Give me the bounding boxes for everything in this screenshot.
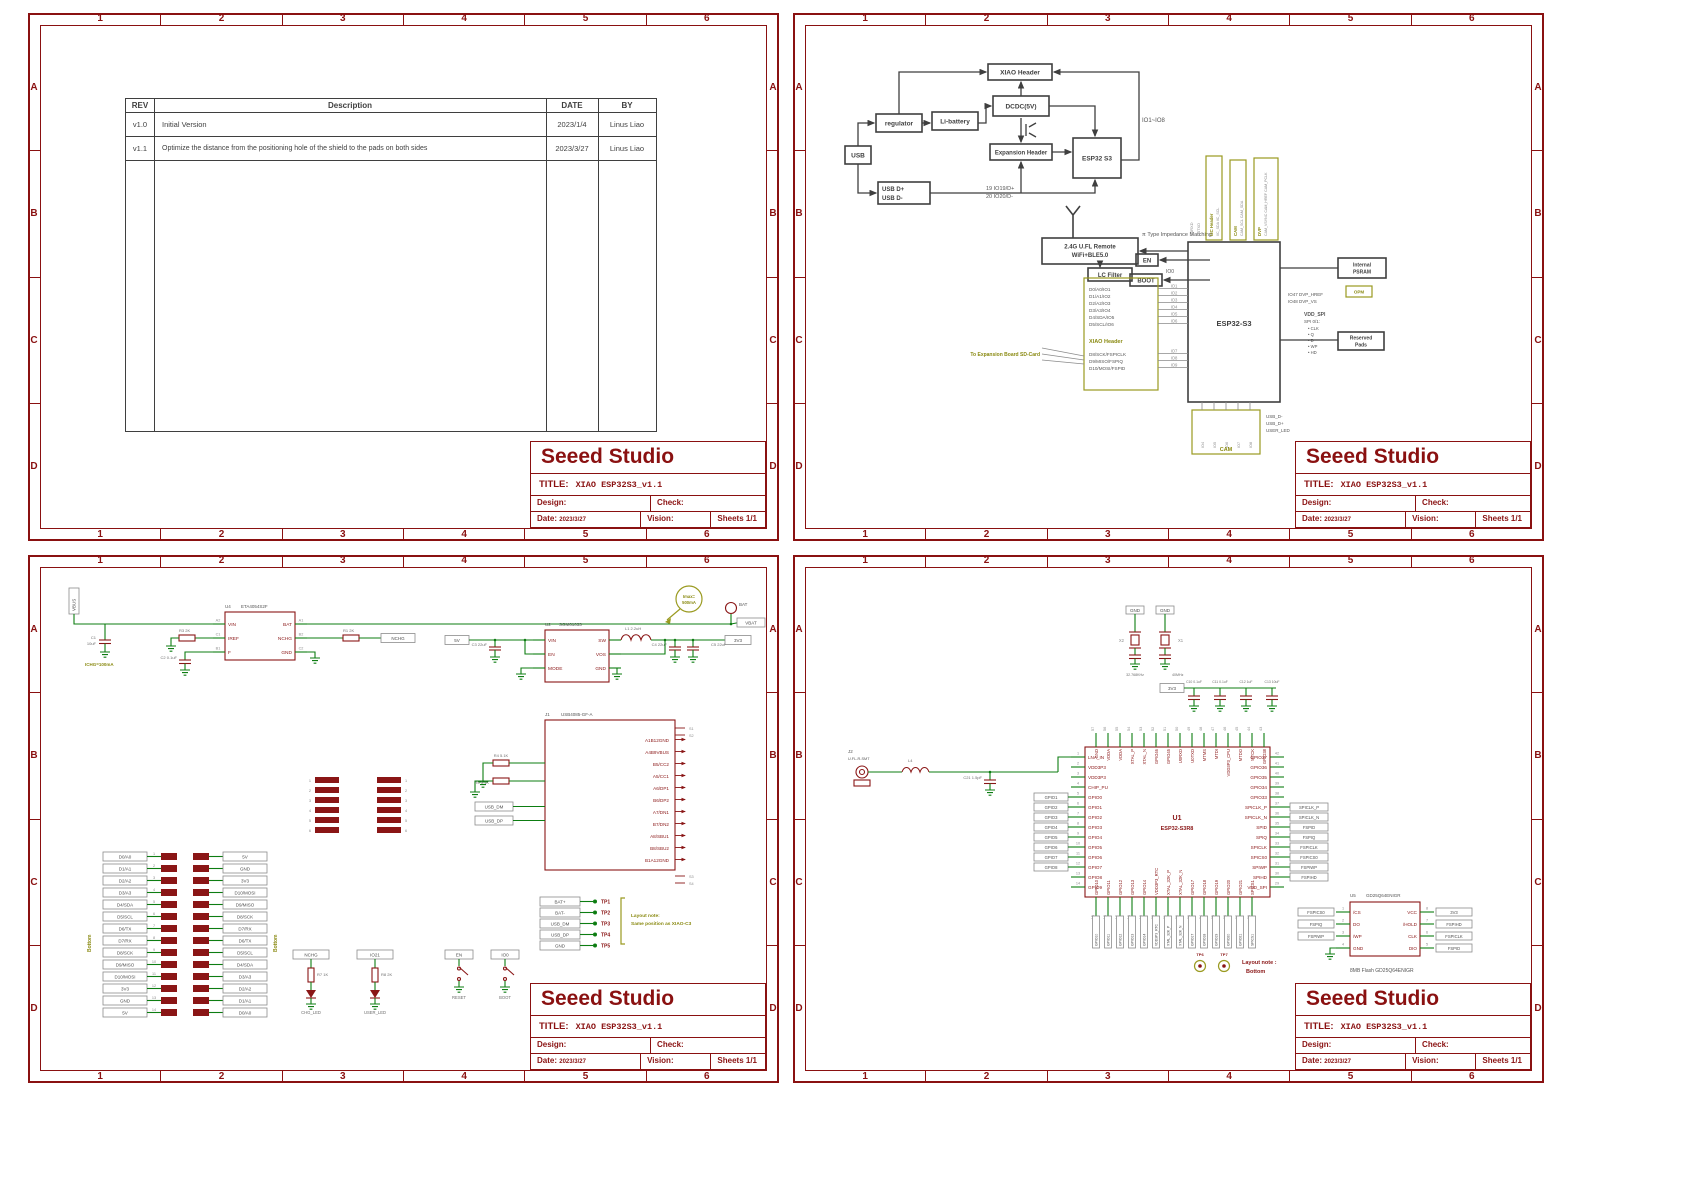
pin-num: 36 (1275, 812, 1279, 816)
pin-name: B7/DN2 (653, 822, 670, 827)
xiao-io-nums-b: IO7IO8IO9 (1158, 349, 1188, 368)
pin-num: B2 (299, 633, 304, 637)
shield-pin: S4 (689, 882, 694, 886)
pin-num: 1 (153, 852, 155, 856)
pad-net: D7/RX (238, 927, 251, 932)
pin-num: A2 (216, 619, 221, 623)
company-name: Seeed Studio (531, 442, 765, 474)
vision-label: Vision: (640, 512, 710, 527)
dcdc-block: DCDC(5V) (1005, 104, 1036, 111)
design-label: Design: (531, 1038, 650, 1053)
net-label: USB_D+ (1266, 421, 1284, 426)
pad-num: 6 (405, 829, 407, 833)
ruler-row-label: D (28, 403, 40, 529)
l1-label: L1 2.2uH (625, 626, 641, 631)
c5-label: C5 22uF (711, 642, 727, 647)
pin-name: SPIWP (1252, 865, 1267, 870)
pin-num: C1 (216, 633, 221, 637)
pin-name: GPIO1 (1088, 805, 1102, 810)
xiao-header-block: XIAO Header (1000, 70, 1040, 77)
mosfet-icon (1026, 123, 1036, 137)
pad-net: D8/SCK (237, 915, 253, 920)
c1-value: 10uF (87, 641, 97, 646)
sheet-2: 123456 123456 ABCD ABCD USB regulator Li… (790, 10, 1547, 544)
pin-num: 13 (152, 996, 156, 1000)
bottom-note-right: Bottom (273, 934, 279, 952)
pin-num: 7 (153, 924, 155, 928)
button-circuit: EN RESET IO0 BOOT (445, 950, 519, 1000)
x2-value: 32.768KHz (1126, 673, 1144, 677)
net-flag: XTAL_32K_P (1167, 925, 1171, 946)
pin-name: MTCK (1250, 749, 1255, 761)
crystal-circuit: GNDGND X2 32.768KHz X1 40MHz (1119, 606, 1184, 677)
pin-num: 35 (1275, 822, 1279, 826)
pad-num: 3 (309, 799, 311, 803)
net-label: USB_D- (1266, 414, 1283, 419)
cap-label: C10 0.1uF (1186, 680, 1202, 684)
tp-net: BAT- (555, 911, 565, 916)
sheets-value: Sheets 1/1 (1475, 1054, 1530, 1069)
flash-right-nets: 3V3FSPIHDFSPICLKFSPID (1436, 908, 1472, 952)
pad-net: D8/SCK (117, 951, 133, 956)
u4-left-pins: A2VINC1IREFB1F (213, 619, 239, 657)
rev-desc: Initial Version (154, 120, 546, 129)
vision-label: Vision: (1405, 512, 1475, 527)
pin-name: GPIO19 (1214, 879, 1219, 895)
net-flag: GPIO10 (1095, 934, 1099, 946)
pin-name: MTMS (1202, 749, 1207, 762)
ruler-right: ABCD (767, 25, 779, 529)
date-cell: Date: 2023/3/27 (1296, 512, 1405, 527)
revision-row: v1.1 Optimize the distance from the posi… (126, 136, 656, 160)
revision-row: v1.0 Initial Version 2023/1/4 Linus Liao (126, 112, 656, 136)
net-dp-label: 19 IO19/D+ (986, 186, 1014, 192)
col-description: Description (154, 101, 546, 110)
pin-name: VCC (1407, 910, 1417, 915)
pin-num: 37 (1275, 802, 1279, 806)
vision-label: Vision: (640, 1054, 710, 1069)
pin-name: A4B9VBUS (645, 750, 669, 755)
pin-name: A1B12GND (645, 738, 670, 743)
usb-block: USB (851, 153, 865, 160)
c1-ref: C1 (91, 635, 97, 640)
pin-name: /WP (1353, 934, 1362, 939)
pin-name: GPIO45 (1166, 748, 1171, 764)
title-block: Seeed Studio TITLE:XIAO ESP32S3_v1.1 Des… (530, 983, 766, 1070)
signal-label: D10/MOSI/FSPID (1089, 366, 1126, 371)
pad-num: 1 (405, 779, 407, 783)
pin-num: 1 (1077, 752, 1079, 756)
xiao-header-label: XIAO Header (1089, 339, 1123, 345)
pin-num: 55 (1115, 727, 1119, 731)
pad-net: D1/A1 (239, 999, 252, 1004)
pin-num: 7 (1077, 812, 1079, 816)
pin-name: VIN (228, 622, 237, 628)
pad-net: GND (120, 999, 131, 1004)
title-row: TITLE:XIAO ESP32S3_v1.1 (531, 1016, 765, 1038)
pin-name: GPIO33 (1250, 795, 1267, 800)
x1-value: 40MHz (1172, 673, 1184, 677)
io-range-label: IO1~IO8 (1142, 118, 1166, 124)
pad-net: 3V3 (241, 879, 250, 884)
shield-pin: S1 (689, 727, 694, 731)
pin-name: CHIP_PU (1088, 785, 1108, 790)
ruler-row-label: A (28, 25, 40, 150)
date-cell: Date: 2023/3/27 (1296, 1054, 1405, 1069)
cam-net: IO5 (1213, 442, 1217, 448)
pad-num: 2 (309, 789, 311, 793)
title-label: TITLE: (539, 1021, 569, 1032)
reserved-label-2: Pads (1355, 343, 1367, 349)
pin-name: /HOLD (1403, 922, 1418, 927)
pin-name: SPIHD (1253, 875, 1268, 880)
net-flag: 3V3 (1450, 910, 1458, 915)
pad-net: GND (240, 867, 251, 872)
pin-num: A1 (299, 619, 304, 623)
vdd-spi-label: VDD_SPI (1304, 312, 1326, 318)
title-block: Seeed Studio TITLE:XIAO ESP32S3_v1.1 Des… (530, 441, 766, 528)
u4-part: ETA4054S2F (241, 604, 268, 609)
pin-num: 6 (1077, 802, 1079, 806)
net-flag: FSPICS0 (1300, 855, 1318, 860)
r4-label: R4 5.1K (494, 753, 509, 758)
pin-num: 14 (152, 1008, 156, 1012)
net-flag: GPIO21 (1239, 934, 1243, 946)
net-flag: GPIO3 (1045, 815, 1058, 820)
vbox-nets: CAM_SCL CAM_SDA (1240, 200, 1244, 236)
pin-num: 1 (1342, 907, 1344, 911)
led-name: USER_LED (364, 1010, 386, 1015)
pad-net: D6/TX (119, 927, 132, 932)
xiao-io-nums-a: IO1IO2IO3IO4IO5IO6 (1158, 284, 1188, 324)
u2-left-pins: VINENMODE (533, 638, 562, 672)
design-label: Design: (1296, 1038, 1415, 1053)
net-flag: FSPID (1448, 946, 1460, 951)
company-name: Seeed Studio (1296, 442, 1530, 474)
pin-num: 33 (1275, 842, 1279, 846)
pin-num: 9 (1077, 832, 1079, 836)
pin-num: 8 (153, 936, 155, 940)
net-flag: FSPIQ (1303, 835, 1316, 840)
io-num: IO2 (1171, 291, 1178, 296)
button-net: EN (456, 953, 462, 958)
bat-terminal-label: BAT (739, 602, 748, 607)
revision-table-header: REV Description DATE BY (126, 99, 656, 112)
design-label: Design: (1296, 496, 1415, 511)
antenna-connector-circuit: J2 U.FL-R-SMT L4 C21 1.5pF (848, 749, 1071, 795)
io-num: IO7 (1171, 349, 1178, 354)
pin-num: 13 (1076, 872, 1080, 876)
pin-name: GPIO10 (1094, 879, 1099, 895)
x2-ref: X2 (1119, 638, 1125, 643)
pin-num: 52 (1151, 727, 1155, 731)
battery-charger-circuit: VBUS C1 10uF ICHG=100mA U4 ETA4054S2F A2… (69, 586, 765, 675)
tp-name: TP1 (601, 900, 610, 906)
sheets-value: Sheets 1/1 (710, 512, 765, 527)
cam-nets: IO4IO5IO6IO7IO8 (1201, 402, 1253, 448)
date-value: 2023/3/27 (1324, 1059, 1351, 1065)
led-net: IO21 (370, 953, 380, 958)
block-diagram: USB regulator Li-battery XIAO Header DCD… (845, 64, 1166, 204)
signal-label: D0/A0/IO1 (1089, 287, 1111, 292)
usbc-pins: A1B12GNDA4B9VBUSB5/CC2A5/CC1A6/DP1B6/DP2… (645, 738, 685, 863)
pad-net: D10/MOSI (234, 891, 255, 896)
pin-name: DO (1353, 922, 1360, 927)
usb-c-connector: J1 USB4085-GF-A A1B12GNDA4B9VBUSB5/CC2A5… (470, 712, 694, 886)
pin-name: DIO (1409, 946, 1418, 951)
u2-right-pins: SWVOSGND (595, 638, 621, 672)
rev-date: 2023/1/4 (546, 120, 598, 129)
pin-name: GPIO0 (1088, 795, 1102, 800)
pin-name: VDD3P3_RTC (1154, 868, 1159, 895)
pin-name: SPID (1256, 825, 1267, 830)
col-date: DATE (546, 101, 598, 110)
pad-net: D0/A0 (239, 1011, 252, 1016)
net-flag: GPIO2 (1045, 805, 1058, 810)
pin-name: GPIO21 (1238, 879, 1243, 895)
led-resistor: R8 2K (381, 972, 392, 977)
pin-name: GPIO5 (1088, 845, 1102, 850)
date-label: Date: (1302, 514, 1322, 523)
ruler-col-label: 2 (160, 13, 281, 25)
schematic-title: XIAO ESP32S3_v1.1 (1341, 480, 1428, 490)
pad-net: D9/MISO (116, 963, 135, 968)
net-flag: GPIO20 (1227, 934, 1231, 946)
pin-num: 38 (1275, 792, 1279, 796)
j2-ref: J2 (848, 749, 853, 754)
title-block: Seeed Studio TITLE:XIAO ESP32S3_v1.1 Des… (1295, 441, 1531, 528)
schematic-document: 123456 123456 ABCD ABCD REV Description … (0, 0, 1684, 1191)
tp-net: GND (555, 944, 566, 949)
check-label: Check: (1415, 496, 1530, 511)
pin-name: SPICLK_P (1245, 805, 1267, 810)
pin-name: CLK (1408, 934, 1418, 939)
usbc-shield-top: S1S2 (675, 727, 694, 738)
ruler-col-label: 5 (524, 13, 645, 25)
mcu-left-pins: 1LNA_IN2VDD3P33VDD3P34CHIP_PU5GPIO06GPIO… (1071, 752, 1108, 891)
sheets-value: Sheets 1/1 (710, 1054, 765, 1069)
pin-name: MTDO (1238, 748, 1243, 761)
cam-net: IO7 (1237, 442, 1241, 448)
io-num: IO4 (1171, 305, 1178, 310)
net-flag: FSPICS0 (1307, 910, 1325, 915)
net-flag: FSPICLK (1445, 934, 1463, 939)
c2-label: C2 0.1uF (161, 655, 178, 660)
pin-num: C2 (299, 647, 304, 651)
net-flag: GPIO8 (1045, 865, 1058, 870)
pin-name: VDD3P3 (1088, 775, 1106, 780)
pad-net: 3V3 (121, 987, 130, 992)
vbus-flag: VBUS (72, 599, 77, 611)
spi-signal: • HD (1308, 350, 1317, 355)
pin-name: GND (281, 650, 292, 656)
pad-num: 4 (309, 809, 311, 813)
header-right-column: 5V GND 3V3 D10/MOSI (193, 852, 267, 1017)
antenna-icon (1066, 206, 1080, 238)
ruler-col-label: 6 (646, 13, 767, 25)
button-name: BOOT (499, 995, 511, 1000)
pin-num: 39 (1275, 782, 1279, 786)
u0rxd-label: U0RXD (1189, 222, 1194, 236)
pad-num: 5 (309, 819, 311, 823)
ruler-col-label: 2 (160, 529, 281, 541)
ruler-row-label: B (28, 150, 40, 276)
pin-name: GPIO14 (1142, 879, 1147, 895)
pin-num: 47 (1211, 727, 1215, 731)
pin-num: 8 (1077, 822, 1079, 826)
cap-label: C11 0.1uF (1212, 680, 1228, 684)
pad-net: D3/A3 (119, 891, 132, 896)
mcu-bottom-net-flags: GPIO10GPIO11GPIO12GPIO13GPIO14VDD3P3_RTC… (1093, 911, 1256, 948)
pin-num: 10 (152, 960, 156, 964)
5v-flag: 5V (454, 638, 460, 643)
net-flag: FSPIQ (1310, 922, 1323, 927)
pin-num: 50 (1175, 727, 1179, 731)
pin-name: SPICS0 (1251, 855, 1268, 860)
vbox-caption: DVP (1257, 227, 1262, 236)
ruler-col-label: 6 (646, 529, 767, 541)
signal-label: D9/MISO/FSPIQ (1089, 359, 1123, 364)
pin-name: GPIO2 (1088, 815, 1102, 820)
date-cell: Date: 2023/3/27 (531, 512, 640, 527)
net-flag: GPIO7 (1045, 855, 1058, 860)
l4-label: L4 (908, 758, 913, 763)
pin-name: XTAL_P (1130, 749, 1135, 764)
vbat-flag: VBAT (745, 621, 757, 626)
date-label: Date: (537, 514, 557, 523)
pin-name: B8/SBU2 (650, 846, 669, 851)
ruler-col-label: 5 (524, 529, 645, 541)
pin-name: GPIO11 (1106, 880, 1111, 895)
net-flag: SPICS1 (1251, 934, 1255, 946)
u4-ref: U4 (225, 604, 231, 609)
pin-num: 4 (1342, 943, 1344, 947)
impedance-matching-label: π Type Impedance Matching (1142, 232, 1212, 238)
dcdc-circuit: 5V C3 22uF U2 SGM61033 VINENMODE SWVOSGN… (445, 622, 751, 682)
pin-num: 9 (153, 948, 155, 952)
pin-num: 34 (1275, 832, 1279, 836)
tp-name: TP2 (601, 911, 610, 917)
check-label: Check: (650, 496, 765, 511)
cam-label: CAM (1220, 447, 1233, 453)
net-flag: XTAL_32K_N (1179, 925, 1183, 946)
gnd-flag: GND (1160, 608, 1171, 613)
pin-num: 40 (1275, 772, 1279, 776)
pin-name: VOS (596, 652, 606, 658)
esp32s3-mcu: U1 ESP32-S3R8 1LNA_IN2VDD3P33VDD3P34CHIP… (1034, 727, 1328, 948)
below-chip-labels: USB_D-USB_D+USER_LED (1266, 414, 1291, 433)
header-left-column: D0/A0 D1/A1 D2/A2 D3/A3 (103, 852, 177, 1017)
ruler-col-label: 1 (40, 13, 160, 25)
net-flag: FSPIWP (1301, 865, 1317, 870)
pad-net: D4/SDA (117, 903, 133, 908)
pin-name: GND (1094, 749, 1099, 758)
sheet-3: 123456 123456 ABCD ABCD VBUS C1 10uF ICH… (25, 552, 782, 1086)
pin-num: 4 (1077, 782, 1079, 786)
pin-name: GPIO46 (1154, 748, 1159, 764)
net-label: USER_LED (1266, 428, 1291, 433)
signal-label: D2/A2/IO3 (1089, 301, 1111, 306)
net-dn-label: 20 IO20/D- (986, 194, 1013, 200)
vbox-nets: CAM_VSYNC CAM_HREF CAM_PCLK (1264, 172, 1268, 236)
ruler-col-label: 3 (282, 529, 403, 541)
pin-name: GND (595, 666, 606, 672)
pin-name: GPIO20 (1226, 879, 1231, 895)
date-value: 2023/3/27 (1324, 517, 1351, 523)
io0-label: IO0 (1166, 269, 1174, 275)
pin-num: 14 (1076, 882, 1080, 886)
pad-net: D4/SDA (237, 963, 253, 968)
pin-name: XTAL_32K_N (1178, 870, 1183, 895)
pin-num: 5 (1426, 943, 1428, 947)
pin-num: 44 (1247, 727, 1251, 731)
net-flag: GPIO14 (1143, 934, 1147, 946)
usb-dm-flag: USB_DM (485, 805, 504, 810)
imax-note-circle (676, 586, 702, 612)
io-num: IO6 (1171, 319, 1178, 324)
net-flag: FSPIHD (1446, 922, 1461, 927)
tp-name: TP7 (1220, 952, 1228, 957)
pin-name: VDDA (1118, 749, 1123, 761)
pin-name: EN (548, 652, 555, 658)
pin-name: VDD3P3 (1088, 765, 1106, 770)
pin-name: U0RXD (1178, 749, 1183, 763)
title-row: TITLE:XIAO ESP32S3_v1.1 (1296, 474, 1530, 496)
r1-label: R1 2K (343, 628, 354, 633)
pin-name: F (228, 650, 231, 656)
ruler-row-label: B (767, 150, 779, 276)
rev-value: v1.0 (126, 120, 154, 129)
pin-name: SPICLK (1251, 845, 1268, 850)
pin-name: GPIO3 (1088, 825, 1102, 830)
sheet-1: 123456 123456 ABCD ABCD REV Description … (25, 10, 782, 544)
pad-num: 4 (405, 809, 407, 813)
test-point-row: BAT+ TP1 BAT- TP2 USB_DM TP3 (540, 897, 610, 950)
esp32s3-chip-label: ESP32-S3 (1216, 319, 1251, 328)
pin-name: VDD3P3_CPU (1226, 749, 1231, 776)
pin-num: 43 (1259, 727, 1263, 731)
pin-num: 56 (1103, 727, 1107, 731)
gnd-flag: GND (1130, 608, 1141, 613)
pin-num: 5 (153, 900, 155, 904)
button-net: IO0 (501, 953, 509, 958)
pin-num: 2 (1342, 919, 1344, 923)
title-row: TITLE:XIAO ESP32S3_v1.1 (1296, 1016, 1530, 1038)
pin-num: 7 (1426, 919, 1428, 923)
pin-name: GPIO12 (1118, 879, 1123, 895)
test-points: BAT+ TP1 BAT- TP2 USB_DM TP3 (540, 897, 692, 950)
pin-num: 11 (1076, 852, 1080, 856)
pin-num: 41 (1275, 762, 1279, 766)
mcu-top-pins: 57 GND 56 VDDA 55 VDDA 54 XTAL_P 53 (1091, 727, 1267, 777)
tp-name: TP5 (601, 944, 610, 950)
net-flag: GPIO6 (1045, 845, 1058, 850)
net-flag: FSPICLK (1300, 845, 1318, 850)
xiao-pad-header: D0/A0 D1/A1 D2/A2 D3/A3 (87, 852, 279, 1017)
pad-num: 3 (405, 799, 407, 803)
net-flag: GPIO12 (1119, 934, 1123, 946)
title-label: TITLE: (1304, 1021, 1334, 1032)
ruler-col-label: 3 (282, 13, 403, 25)
net-flag: GPIO19 (1215, 934, 1219, 946)
ruler-row-label: C (767, 277, 779, 403)
pad-net: D5/SCL (117, 915, 133, 920)
pad-net: D10/MOSI (114, 975, 135, 980)
spi01-label: SPI 0/1: (1304, 319, 1320, 324)
rev-value: v1.1 (126, 144, 154, 153)
vision-label: Vision: (1405, 1054, 1475, 1069)
pin-name: GPIO8 (1088, 875, 1102, 880)
